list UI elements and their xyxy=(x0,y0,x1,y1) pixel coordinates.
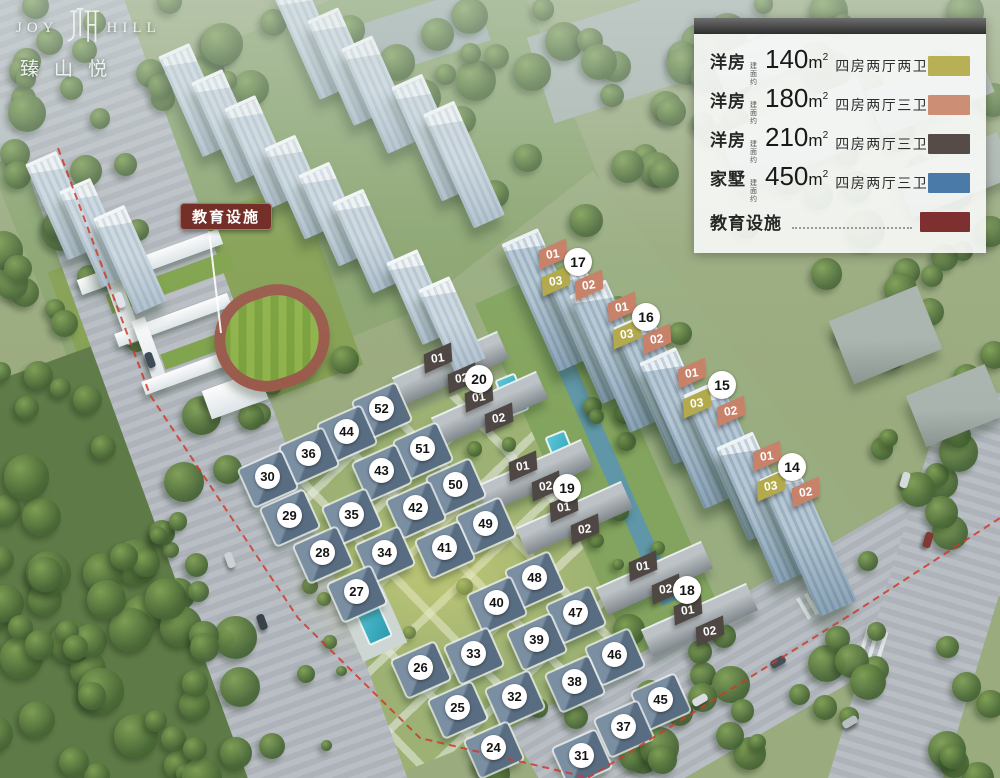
building-marker-46[interactable]: 46 xyxy=(602,642,627,667)
building-marker-51[interactable]: 51 xyxy=(410,436,435,461)
unit-label-01: 01 xyxy=(677,364,707,382)
legend-area-unit: m xyxy=(808,53,822,73)
legend-row-180: 洋房建面约180m2四房两厅三卫 xyxy=(710,85,970,124)
building-marker-45[interactable]: 45 xyxy=(648,687,673,712)
logo: JOY HILL 臻山悦 xyxy=(16,6,161,81)
building-marker-24[interactable]: 24 xyxy=(481,735,506,760)
building-marker-26[interactable]: 26 xyxy=(408,655,433,680)
legend-rows: 洋房建面约140m2四房两厅两卫洋房建面约180m2四房两厅三卫洋房建面约210… xyxy=(694,34,986,253)
legend-swatch xyxy=(928,95,970,115)
unit-label-03: 03 xyxy=(682,394,712,412)
building-marker-37[interactable]: 37 xyxy=(611,714,636,739)
legend-area-value: 450 xyxy=(765,161,808,192)
legend-panel: 洋房建面约140m2四房两厅两卫洋房建面约180m2四房两厅三卫洋房建面约210… xyxy=(694,18,986,253)
legend-type-text: 家墅 xyxy=(710,165,746,190)
unit-label-02: 02 xyxy=(695,622,725,640)
logo-hill-text: HILL xyxy=(107,20,161,37)
legend-area-value: 140 xyxy=(765,44,808,75)
unit-label-03: 03 xyxy=(541,272,571,290)
unit-label-01: 01 xyxy=(508,457,538,475)
building-marker-25[interactable]: 25 xyxy=(445,695,470,720)
legend-row-label: 洋房建面约180m2 xyxy=(710,83,835,125)
legend-area-sup: 2 xyxy=(823,91,829,102)
unit-label-02: 02 xyxy=(791,483,821,501)
unit-label-02: 02 xyxy=(574,276,604,294)
legend-area-unit: m xyxy=(808,92,822,112)
legend-area-unit: m xyxy=(808,131,822,151)
legend-dotted-leader xyxy=(792,221,912,229)
legend-type-text: 洋房 xyxy=(710,126,746,151)
logo-joy-text: JOY xyxy=(16,20,59,37)
legend-swatch xyxy=(920,212,970,232)
building-marker-34[interactable]: 34 xyxy=(372,540,397,565)
building-marker-40[interactable]: 40 xyxy=(484,590,509,615)
legend-layout-text: 四房两厅三卫 xyxy=(835,95,928,115)
building-marker-32[interactable]: 32 xyxy=(502,684,527,709)
legend-area-prefix: 建面约 xyxy=(750,180,763,203)
education-facility-label[interactable]: 教育设施 xyxy=(180,203,272,230)
building-marker-14[interactable]: 14 xyxy=(778,453,806,481)
building-marker-43[interactable]: 43 xyxy=(369,458,394,483)
unit-label-02: 02 xyxy=(642,330,672,348)
legend-layout-text: 四房两厅两卫 xyxy=(835,56,928,76)
building-marker-44[interactable]: 44 xyxy=(334,419,359,444)
building-marker-39[interactable]: 39 xyxy=(524,627,549,652)
building-marker-30[interactable]: 30 xyxy=(255,464,280,489)
building-marker-20[interactable]: 20 xyxy=(465,365,493,393)
legend-layout-text: 四房两厅三卫 xyxy=(835,134,928,154)
legend-row-label: 家墅建面约450m2 xyxy=(710,161,835,203)
joyhill-monogram-icon xyxy=(66,6,100,51)
building-marker-19[interactable]: 19 xyxy=(553,474,581,502)
unit-label-01: 01 xyxy=(423,349,453,367)
legend-area-unit: m xyxy=(808,170,822,190)
logo-chinese-name: 臻山悦 xyxy=(16,54,161,81)
building-marker-31[interactable]: 31 xyxy=(569,743,594,768)
legend-header-bar xyxy=(694,18,986,34)
legend-row-label: 洋房建面约210m2 xyxy=(710,122,835,164)
building-marker-15[interactable]: 15 xyxy=(708,371,736,399)
unit-label-02: 02 xyxy=(570,520,600,538)
legend-row-教育设施: 教育设施 xyxy=(710,202,970,241)
building-marker-18[interactable]: 18 xyxy=(673,576,701,604)
building-marker-41[interactable]: 41 xyxy=(432,535,457,560)
building-marker-50[interactable]: 50 xyxy=(443,472,468,497)
building-marker-49[interactable]: 49 xyxy=(473,511,498,536)
building-marker-16[interactable]: 16 xyxy=(632,303,660,331)
legend-swatch xyxy=(928,173,970,193)
legend-area-value: 180 xyxy=(765,83,808,114)
building-marker-42[interactable]: 42 xyxy=(403,495,428,520)
building-marker-52[interactable]: 52 xyxy=(369,396,394,421)
legend-row-210: 洋房建面约210m2四房两厅三卫 xyxy=(710,124,970,163)
building-marker-29[interactable]: 29 xyxy=(277,503,302,528)
legend-swatch xyxy=(928,134,970,154)
legend-row-450: 家墅建面约450m2四房两厅三卫 xyxy=(710,163,970,202)
education-facility-text: 教育设施 xyxy=(192,206,260,227)
building-marker-47[interactable]: 47 xyxy=(563,600,588,625)
unit-label-03: 03 xyxy=(756,477,786,495)
legend-swatch xyxy=(928,56,970,76)
legend-type-text: 洋房 xyxy=(710,48,746,73)
building-marker-35[interactable]: 35 xyxy=(339,502,364,527)
legend-row-140: 洋房建面约140m2四房两厅两卫 xyxy=(710,46,970,85)
building-marker-38[interactable]: 38 xyxy=(562,669,587,694)
masterplan-rendering: 0103020103020103020103020102010201020102… xyxy=(0,0,1000,778)
building-marker-36[interactable]: 36 xyxy=(296,441,321,466)
legend-type-text: 教育设施 xyxy=(710,209,782,234)
unit-label-02: 02 xyxy=(716,402,746,420)
building-marker-48[interactable]: 48 xyxy=(522,565,547,590)
legend-row-label: 洋房建面约140m2 xyxy=(710,44,835,86)
building-marker-33[interactable]: 33 xyxy=(461,641,486,666)
legend-area-sup: 2 xyxy=(823,130,829,141)
building-marker-27[interactable]: 27 xyxy=(344,579,369,604)
legend-area-sup: 2 xyxy=(823,169,829,180)
building-marker-28[interactable]: 28 xyxy=(310,540,335,565)
unit-label-02: 02 xyxy=(484,409,514,427)
legend-layout-text: 四房两厅三卫 xyxy=(835,173,928,193)
legend-area-sup: 2 xyxy=(823,52,829,63)
legend-type-text: 洋房 xyxy=(710,87,746,112)
legend-area-value: 210 xyxy=(765,122,808,153)
unit-label-01: 01 xyxy=(628,557,658,575)
building-marker-17[interactable]: 17 xyxy=(564,248,592,276)
